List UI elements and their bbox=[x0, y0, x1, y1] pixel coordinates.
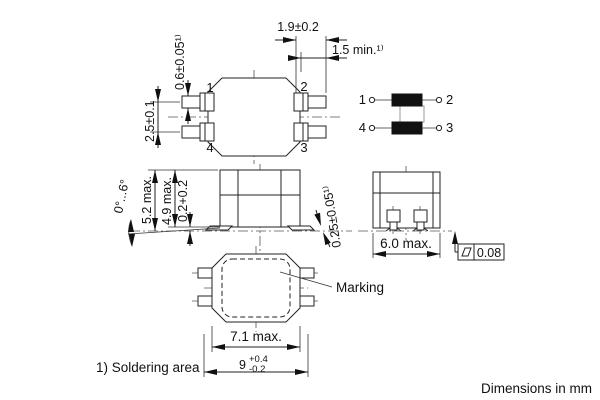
dim-height-max-label: 5.2 max. bbox=[140, 176, 154, 224]
dim-standoff-label: 0.2+0.2 bbox=[176, 180, 190, 222]
top-pin1-label: 1 bbox=[206, 80, 213, 95]
dim-body-height-max-label: 4.9 max. bbox=[160, 177, 174, 225]
schematic-core bbox=[400, 106, 424, 122]
coplanarity-callout: 0.08 bbox=[452, 231, 504, 260]
front-view-body bbox=[220, 170, 300, 227]
top-pin4-label: 4 bbox=[206, 140, 213, 155]
dim-tilt-angle-label: 0°...6° bbox=[111, 178, 132, 214]
schematic-pin4-label: 4 bbox=[359, 120, 366, 135]
top-view: 1 2 4 3 1.9±0.2 1.5 min.¹⁾ 0.6±0.05¹⁾ bbox=[143, 20, 384, 164]
schematic-pin1-label: 1 bbox=[359, 92, 366, 107]
dim-standoff: 0.2+0.2 bbox=[176, 180, 193, 246]
units-note: Dimensions in mm bbox=[481, 381, 592, 396]
dim-pin-width: 0.6±0.05¹⁾ bbox=[173, 34, 191, 124]
schematic-symbol: 1 2 4 3 bbox=[359, 92, 453, 135]
schematic-winding-bottom bbox=[392, 122, 422, 134]
schematic-pin3-label: 3 bbox=[446, 120, 453, 135]
top-pin2-label: 2 bbox=[300, 79, 307, 94]
dim-overall-width-value: 9 bbox=[239, 358, 246, 372]
dim-pin-pitch-label: 2.5±0.1 bbox=[143, 100, 157, 142]
dim-pin-length-label: 1.9±0.2 bbox=[277, 20, 319, 34]
dim-pin-width-label: 0.6±0.05¹⁾ bbox=[173, 34, 187, 90]
dim-terminal-thickness: 0.25±0.05¹⁾ bbox=[314, 185, 344, 249]
coplanarity-value: 0.08 bbox=[477, 246, 501, 260]
dim-tilt-angle: 0°...6° bbox=[111, 178, 135, 247]
dim-body-width-max-label: 7.1 max. bbox=[230, 329, 282, 344]
front-view-right-foot bbox=[288, 226, 314, 230]
marking-label: Marking bbox=[336, 280, 384, 295]
dimension-drawing-page: 1 2 4 3 1.9±0.2 1.5 min.¹⁾ 0.6±0.05¹⁾ bbox=[0, 0, 600, 400]
bottom-view: Marking 7.1 max. 9 +0.4 -0.2 bbox=[192, 246, 384, 377]
footnote-soldering-area: 1) Soldering area bbox=[96, 360, 200, 375]
top-pin3-label: 3 bbox=[300, 140, 307, 155]
dim-body-width-max: 7.1 max. bbox=[212, 326, 300, 352]
dim-solder-length: 1.5 min.¹⁾ bbox=[288, 43, 384, 72]
dim-width-max-label: 6.0 max. bbox=[380, 236, 432, 251]
dim-solder-length-label: 1.5 min.¹⁾ bbox=[332, 43, 384, 57]
schematic-pin2-label: 2 bbox=[446, 92, 453, 107]
dimension-drawing: 1 2 4 3 1.9±0.2 1.5 min.¹⁾ 0.6±0.05¹⁾ bbox=[0, 0, 600, 400]
schematic-winding-top bbox=[392, 94, 422, 106]
front-view: 0°...6° 5.2 max. 4.9 max. 0.2+0.2 bbox=[111, 164, 352, 251]
top-view-body bbox=[208, 78, 300, 156]
dim-width-max: 6.0 max. bbox=[373, 233, 440, 258]
dim-terminal-thickness-label: 0.25±0.05¹⁾ bbox=[320, 185, 344, 249]
side-view-body bbox=[373, 172, 440, 228]
bottom-view-body bbox=[212, 254, 300, 322]
dim-overall-width-tol-minus: -0.2 bbox=[249, 364, 265, 375]
side-view: 6.0 max. 0.08 bbox=[358, 166, 504, 260]
